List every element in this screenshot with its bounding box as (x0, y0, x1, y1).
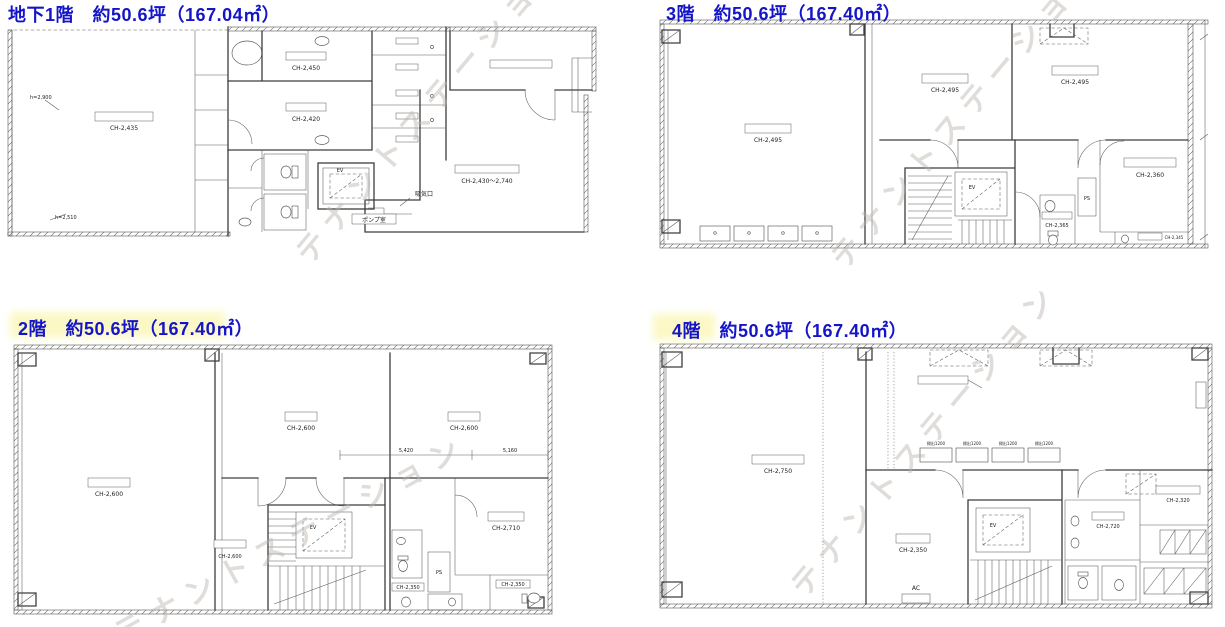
wall-lines (668, 24, 872, 244)
wall (14, 349, 18, 610)
room-name-box (396, 113, 418, 119)
room-name-box (286, 103, 326, 111)
elevator-diagonal (962, 179, 1000, 209)
pipe-space-label: PS (436, 570, 442, 576)
toilet-bowl (281, 206, 291, 218)
door-arc-icon (930, 140, 1106, 168)
room-name-box (396, 38, 418, 44)
window-label: 掃出1200 (1035, 440, 1054, 446)
ac-label: AC (912, 585, 920, 592)
toilet-bowl (1049, 235, 1058, 245)
wall (660, 344, 1212, 348)
wall (14, 345, 552, 349)
ceiling-height-label: CH-2,495 (754, 137, 782, 144)
room-name-box (1052, 66, 1098, 75)
wc-cell (428, 594, 462, 610)
b1f-plan: h=2,900 h=2,510 CH-2,435 CH-2,450 CH-2,4… (8, 27, 596, 236)
ceiling-height-label: CH-2,350 (501, 582, 524, 588)
leader-lines (45, 100, 66, 220)
wall (228, 27, 450, 31)
stair-direction-line (912, 176, 948, 240)
sink-icon (239, 218, 251, 226)
room-name-box (745, 124, 791, 133)
elevator-icon: EV (296, 512, 352, 558)
room-name-box (1156, 486, 1200, 494)
toilet-icon (1115, 580, 1124, 591)
stairs-icon (958, 220, 1012, 244)
wc-walls (1065, 470, 1140, 604)
closet-diagonals (1040, 28, 1088, 44)
ceiling-height-label: CH-2,350 (396, 585, 419, 591)
ceiling-height-label: CH-2,600 (450, 425, 478, 432)
air-intake-label: 吸気口 (415, 190, 433, 198)
ac-unit-icon (902, 594, 930, 603)
room-name-box (88, 478, 130, 487)
niche (1053, 348, 1079, 364)
dimension-label: 5,420 (399, 448, 413, 454)
shelf-icon (1144, 568, 1206, 594)
window-icon (920, 448, 952, 462)
ceiling-height-label: CH-2,495 (931, 87, 959, 94)
wall-lines (1140, 525, 1208, 562)
wall-note: h=2,900 (30, 95, 52, 101)
wall (592, 31, 596, 91)
elevator-diagonal (330, 174, 362, 198)
dimension-label: 5,160 (503, 448, 517, 454)
room-name-box (95, 112, 153, 121)
f3-title: 3階 約50.6坪（167.40㎡） (666, 0, 901, 26)
leader-line (968, 380, 982, 388)
toilet-icon (281, 206, 298, 218)
elevator-icon: EV (976, 508, 1030, 552)
sink-icon (315, 37, 329, 46)
pump-room-label: ポンプ室 (362, 216, 386, 224)
room-name-box (490, 60, 552, 68)
tank-icon (232, 41, 262, 65)
room-name-box (448, 412, 480, 421)
wall (1188, 24, 1193, 244)
fixture-dot (431, 95, 434, 98)
toilet-bowl (399, 561, 408, 572)
elevator-diagonal (303, 519, 345, 551)
stair-direction-line (975, 566, 1052, 600)
toilet-icon (522, 593, 540, 603)
ceiling-height-label: CH-2,750 (764, 468, 792, 475)
shelf-hatching (1160, 530, 1206, 554)
door-arc-icon (228, 120, 252, 144)
room-name-box (214, 540, 246, 548)
room-name-box (286, 52, 326, 60)
dashed-partition (823, 352, 894, 604)
toilet-bowl (1079, 578, 1088, 589)
toilet-tank (522, 594, 527, 603)
elevator-label: EV (337, 168, 344, 174)
sink-icon (315, 136, 329, 145)
toilet-tank (1078, 572, 1088, 576)
window-icon (1028, 448, 1060, 462)
wall (660, 604, 1212, 608)
fixture-dot (714, 232, 717, 235)
dimension-line (1200, 20, 1208, 248)
wall-lines (222, 353, 548, 478)
window-row: 掃出1200 掃出1200 掃出1200 掃出1200 (920, 440, 1060, 462)
skylight-diagonals (930, 350, 988, 366)
pipe-space-label: PS (1084, 196, 1090, 202)
room-name-box (455, 165, 519, 173)
wall (14, 610, 552, 614)
elevator-label: EV (969, 185, 976, 191)
fixture-dot (431, 119, 434, 122)
niche (1050, 24, 1074, 37)
room-name-box (1124, 158, 1176, 167)
room-name-box (752, 455, 804, 464)
toilet-icon (1078, 572, 1088, 589)
f3-plan: CH-2,495 CH-2,495 CH-2,495 (660, 20, 1208, 248)
room-name-box (488, 512, 524, 521)
ceiling-height-label: CH-2,345 (1165, 235, 1184, 240)
ceiling-height-label: CH-2,600 (218, 554, 241, 560)
ceiling-height-label: CH-2,320 (1166, 498, 1189, 504)
sink-icon (397, 538, 406, 545)
room-name-box (1092, 512, 1124, 520)
f4-plan: CH-2,750 掃出1200 掃出1200 掃出1200 掃出1200 (660, 344, 1212, 608)
fixture-dot (431, 46, 434, 49)
wall (660, 348, 664, 604)
sink-icon (1071, 516, 1079, 526)
toilet-tank (292, 166, 298, 178)
room-name-box (396, 64, 418, 70)
stairs-icon (268, 566, 385, 610)
door-arc-icon (935, 470, 1106, 498)
toilet-tank (292, 206, 298, 218)
window-label: 掃出1200 (963, 440, 982, 446)
skylight-icon (930, 350, 988, 366)
door-arc-icon (1100, 141, 1124, 165)
toilet-bowl (281, 166, 291, 178)
f4-title: 4階 約50.6坪（167.40㎡） (672, 317, 907, 343)
wall (660, 244, 1208, 248)
dimension-ticks (195, 75, 228, 180)
ceiling-height-label: CH-2,420 (292, 116, 320, 123)
ceiling-height-label: CH-2,435 (110, 125, 138, 132)
room-name-box (896, 534, 930, 543)
toilet-tank (398, 556, 408, 560)
room-name-box (918, 376, 968, 384)
b1f-title: 地下1階 約50.6坪（167.04㎡） (8, 1, 280, 27)
window-label: 掃出1200 (927, 440, 946, 446)
door-arc-icon (1015, 192, 1040, 217)
room-name-box (1042, 212, 1072, 219)
elevator-label: EV (310, 525, 317, 531)
wall (1208, 348, 1212, 604)
stair-core-walls (905, 140, 1015, 244)
sink-icon (1045, 201, 1055, 212)
shelf-hatching (1144, 568, 1206, 594)
fixture-dot (748, 232, 751, 235)
room-name-box (1138, 233, 1162, 240)
door-arc-icon (455, 478, 477, 575)
elevator-label: EV (990, 523, 997, 529)
wall-lines (365, 90, 584, 232)
ceiling-height-label: CH-2,365 (1045, 223, 1068, 229)
room-name-box (285, 412, 317, 421)
window-icon (1196, 382, 1206, 408)
wall (660, 24, 664, 244)
stair-core-walls (268, 478, 385, 610)
shelf-icon (1160, 530, 1206, 554)
f2-title: 2階 約50.6坪（167.40㎡） (18, 315, 253, 341)
window-icon (572, 58, 592, 112)
ceiling-height-label: CH-2,450 (292, 65, 320, 72)
floorplan-sheet: h=2,900 h=2,510 CH-2,435 CH-2,450 CH-2,4… (0, 0, 1225, 627)
window-icon (956, 448, 988, 462)
ceiling-height-label: CH-2,350 (899, 547, 927, 554)
window-row (700, 226, 832, 241)
wc-walls (1040, 195, 1075, 244)
toilet-icon (402, 597, 411, 607)
wc-cell (392, 530, 422, 578)
ceiling-height-label: CH-2,430〜2,740 (461, 178, 512, 185)
fixture-dot (816, 232, 819, 235)
toilet-bowl (528, 593, 540, 603)
sink-icon (1071, 538, 1079, 548)
f2-plan: CH-2,600 CH-2,600 CH-2,600 5,420 5,160 C… (14, 345, 552, 614)
elevator-icon: EV (955, 172, 1007, 216)
wall-lines (12, 30, 195, 232)
door-arc-icon (525, 90, 555, 120)
toilet-icon (1122, 235, 1129, 243)
elevator-diagonal (983, 515, 1023, 545)
window-label: 掃出1200 (999, 440, 1018, 446)
ceiling-height-label: CH-2,720 (1096, 524, 1119, 530)
room-name-box (396, 136, 418, 142)
wall (548, 349, 552, 610)
door-arc-icon (258, 478, 344, 506)
closet-icon (1040, 28, 1088, 44)
ceiling-height-label: CH-2,710 (492, 525, 520, 532)
ceiling-height-label: CH-2,360 (1136, 172, 1164, 179)
wall (8, 232, 230, 236)
toilet-icon (398, 556, 408, 572)
room-name-box (922, 74, 968, 83)
ceiling-height-label: CH-2,495 (1061, 79, 1089, 86)
urinal-icon (449, 598, 456, 606)
wall (450, 27, 596, 31)
wall-note: h=2,510 (55, 215, 77, 221)
toilet-icon (281, 166, 298, 178)
stairs-icon (268, 512, 296, 561)
window-icon (992, 448, 1024, 462)
closet-diagonal (1126, 474, 1156, 494)
room-name-box (396, 90, 418, 96)
ceiling-height-label: CH-2,600 (287, 425, 315, 432)
wall-lines (1100, 140, 1188, 244)
fixture-dot (782, 232, 785, 235)
ceiling-height-label: CH-2,600 (95, 491, 123, 498)
wall (8, 30, 12, 236)
wall (584, 95, 588, 232)
toilet-icon (1048, 231, 1058, 245)
